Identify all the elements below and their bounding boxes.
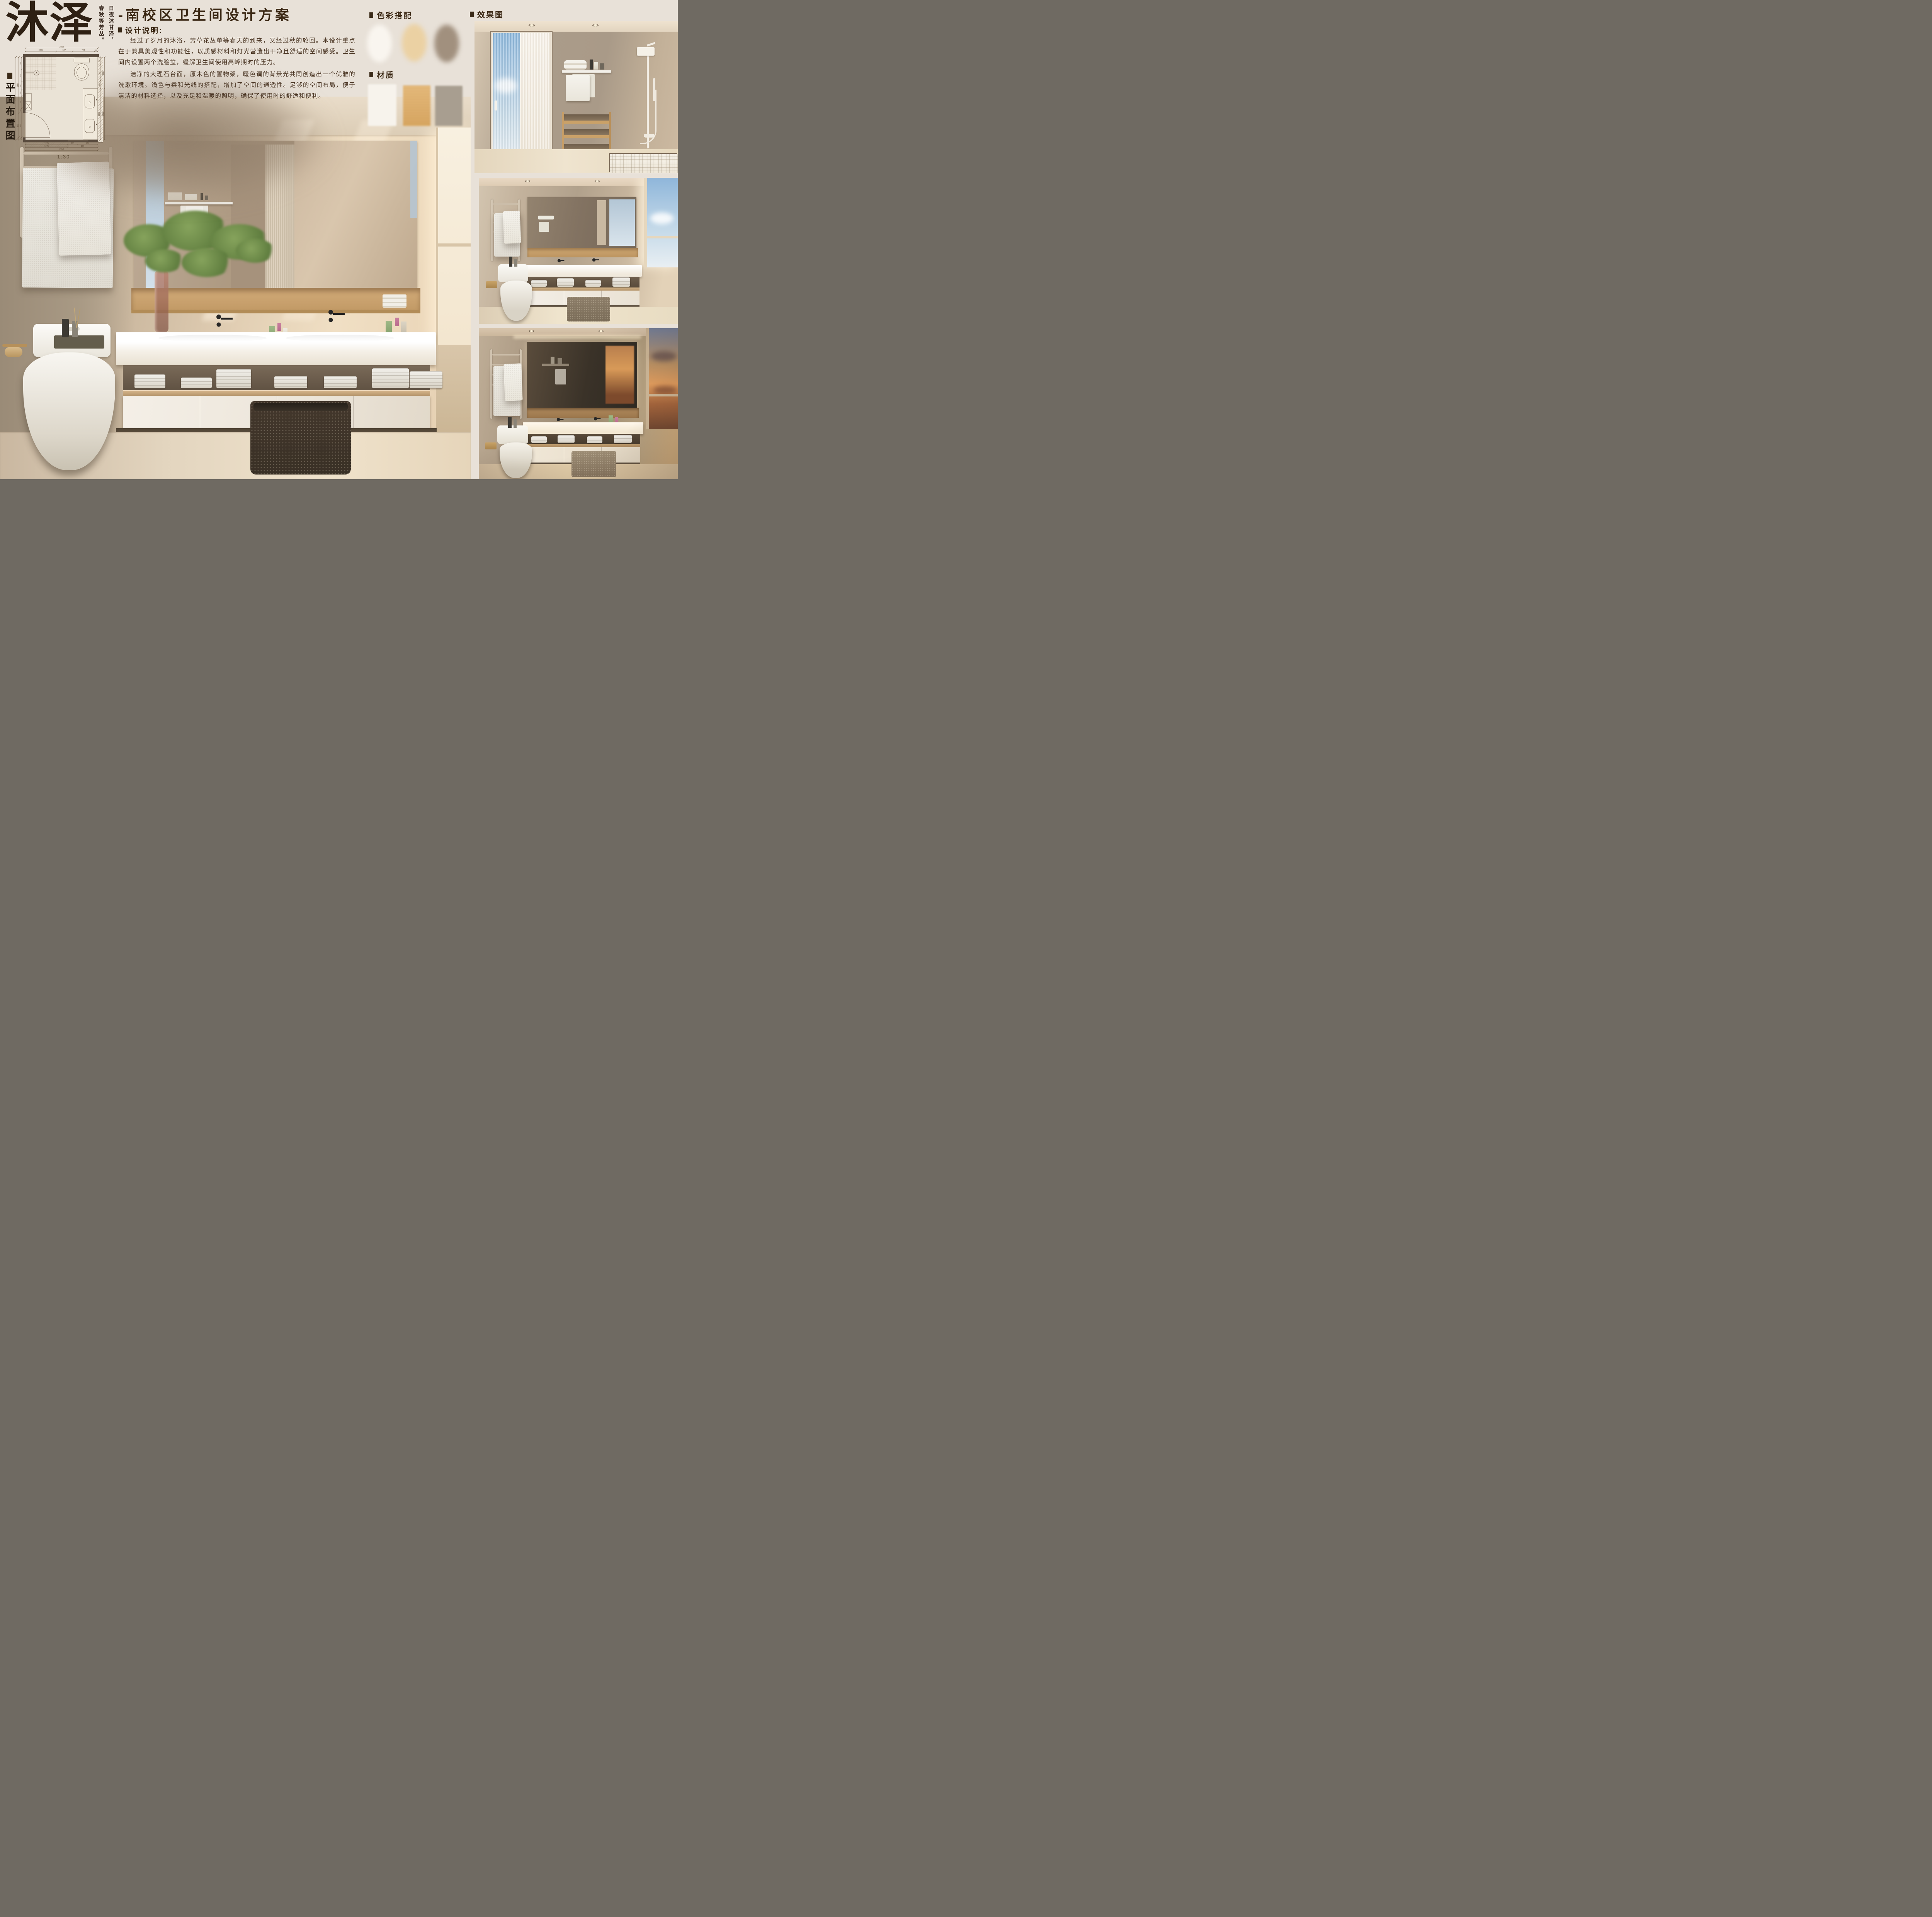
r1-shelf-bottles	[589, 58, 607, 70]
dim-right-outer-0: 1020	[102, 71, 105, 75]
towel-stack	[324, 376, 357, 388]
plan-vanity	[83, 88, 98, 140]
design-notes-label: 设计说明:	[125, 25, 163, 35]
r1-shelf-shade	[564, 129, 609, 135]
r2-towel-stack	[531, 280, 547, 287]
dim-left-inner-2: 260	[20, 85, 22, 87]
plan-scale: 1:30	[57, 154, 70, 160]
dim-left-inner-3: 200	[20, 92, 22, 94]
design-poster: 沐泽 日夜沐甘泽， 春秋等芳丛。 平面布置图	[0, 0, 678, 479]
toiletries-right	[383, 311, 409, 335]
r1-shelf-board2	[564, 121, 609, 124]
r1-shower-tray	[610, 154, 678, 173]
renders-bullet-icon	[470, 12, 474, 17]
dim-left-inner-5: 150	[20, 109, 22, 112]
wood-niche-lip	[131, 310, 420, 313]
r2-spotlight	[525, 180, 530, 182]
r2-mirror-sky	[609, 199, 635, 246]
plant-vase	[155, 270, 168, 332]
material-swatch-marble	[368, 84, 396, 126]
page-title: -南校区卫生间设计方案	[118, 4, 292, 24]
r2-tp-holder	[486, 281, 497, 288]
towel-stack	[216, 369, 251, 388]
wall-faucet-right	[328, 308, 346, 325]
color-swatch-tan	[402, 24, 427, 61]
towel-stack	[372, 368, 409, 388]
plant-leaf	[145, 249, 184, 272]
dim-left-mid-0: 1810	[17, 83, 19, 87]
renders-heading: 效果图	[470, 9, 504, 20]
dim-right-inner-2: 255	[99, 83, 100, 86]
r2-faucet	[557, 258, 565, 265]
dim-left-inner-0: 400	[20, 62, 22, 65]
dim-right-inner-1: 511	[99, 71, 100, 74]
dim-bottom1-0: 1370	[44, 142, 49, 145]
cabinet-seam	[200, 396, 200, 428]
dim-top-1: 527	[63, 49, 66, 51]
r1-spotlight	[592, 24, 599, 27]
r2-towel	[503, 211, 521, 243]
design-notes-heading: 设计说明:	[118, 25, 163, 35]
color-swatch-taupe	[434, 25, 459, 62]
dim-right-outer-1: 1670	[102, 112, 105, 116]
r1-hanging-towel	[566, 75, 590, 101]
laundry-basket	[250, 401, 351, 475]
materials-heading: 材质	[369, 69, 395, 80]
shelf-board	[123, 390, 430, 396]
dim-left-mid-1: 800	[17, 124, 19, 128]
window	[436, 128, 471, 345]
materials-label: 材质	[377, 69, 395, 80]
dim-right-inner-0: 255	[99, 60, 100, 62]
r2-niche	[527, 248, 638, 257]
r2-shelf-board	[527, 287, 639, 291]
r2-counter	[524, 265, 642, 277]
cabinet-seam	[353, 396, 354, 428]
r2-cloud	[650, 213, 673, 224]
dim-left-inner-7: 80	[20, 138, 22, 139]
r3-vignette	[479, 328, 678, 479]
niche-towels	[383, 294, 406, 308]
vanity-counter	[116, 332, 436, 365]
mirror-sky-sliver-right	[410, 141, 417, 218]
dim-top-3: 100	[95, 49, 97, 51]
floor-plan-svg: 2350 1000 527 723 100 2690 1810 800 80 4…	[14, 46, 111, 153]
r1-shelf-board	[562, 70, 611, 73]
r2-toilet-items	[507, 255, 522, 267]
design-notes-bullet-icon	[118, 27, 122, 32]
plan-cabinet	[26, 93, 31, 110]
dim-bottom-overall: 2350	[60, 148, 64, 150]
wall-faucet-left	[216, 313, 234, 329]
r2-shelf-row	[527, 277, 639, 288]
r1-shelf-board2	[564, 135, 609, 138]
open-shelf	[123, 365, 430, 391]
r1-shelf-shade	[564, 114, 609, 121]
r2-rack-rail	[491, 199, 493, 261]
r2-mirror-refl-strip	[597, 200, 606, 245]
r2-basket	[567, 297, 610, 321]
towel-stack	[410, 371, 442, 388]
r2-rack-rung	[493, 203, 518, 205]
materials-bullet-icon	[369, 72, 373, 77]
r1-wall-shelf	[562, 55, 611, 73]
material-swatch-wood	[403, 85, 430, 126]
tp-bracket	[2, 344, 27, 347]
towel-stack	[181, 378, 212, 388]
window-mullion	[438, 243, 471, 247]
towel-stack	[134, 374, 165, 388]
floor-plan: 2350 1000 527 723 100 2690 1810 800 80 4…	[14, 46, 111, 153]
material-swatch-stone	[435, 86, 463, 126]
r2-towel-stack	[585, 280, 601, 287]
design-paragraph-1: 经过了岁月的沐浴，芳草花丛单等春天的到来，又经过秋的轮回。本设计重点在于兼具美观…	[118, 36, 355, 68]
diffuser-bottle	[62, 319, 69, 337]
r2-window	[644, 178, 678, 267]
r2-towel-stack	[612, 277, 630, 287]
r2-window-bar	[647, 236, 678, 238]
towel-stack	[274, 376, 307, 388]
r1-spotlight	[529, 24, 535, 27]
design-notes-body: 经过了岁月的沐浴，芳草花丛单等春天的到来，又经过秋的轮回。本设计重点在于兼具美观…	[118, 36, 355, 102]
basin-recess-left	[158, 335, 267, 342]
dim-left-inner-4: 400	[20, 101, 22, 103]
plant-leaf	[236, 239, 274, 263]
dim-left-outer: 2690	[14, 96, 16, 100]
window-sill-wall	[436, 345, 471, 432]
palette-bullet-icon	[369, 12, 373, 18]
plant-leaf	[182, 248, 232, 277]
plan-toilet	[74, 58, 89, 80]
design-paragraph-2: 洁净的大理石台面，原木色的置物架，暖色调的背景光共同创造出一个优雅的洗漱环境。浅…	[118, 69, 355, 102]
r2-faucet	[592, 257, 600, 264]
r2-mirror-towels	[538, 216, 554, 219]
render-vanity-day	[479, 178, 678, 324]
wood-niche	[131, 288, 420, 310]
dim-bottom1-1: 330	[71, 142, 75, 145]
palette-label: 色彩搭配	[377, 9, 412, 20]
basin-recess-right	[286, 335, 394, 342]
r2-mirror	[527, 197, 636, 248]
r1-ceiling	[474, 21, 678, 32]
dim-top-overall: 2350	[60, 46, 64, 48]
r1-rolled-towels	[564, 60, 587, 70]
render-shower-room	[474, 21, 678, 173]
toilet-paper-holder	[2, 344, 27, 359]
dim-bottom1-2: 650	[86, 142, 90, 145]
dim-top-2: 723	[82, 49, 85, 51]
r2-cabinet-seam	[564, 291, 564, 305]
renders-label: 效果图	[477, 9, 504, 20]
palette-heading: 色彩搭配	[369, 9, 412, 20]
dim-left-mid-2: 80	[17, 138, 19, 139]
color-swatch-cream	[367, 25, 392, 62]
r1-shower-head	[637, 47, 655, 56]
r2-towel-stack	[557, 278, 574, 287]
r1-shower-valve	[644, 134, 655, 138]
dim-bottom2-1: 980	[81, 145, 85, 148]
toilet-tray	[54, 335, 104, 349]
dim-bottom2-0: 1370	[44, 145, 49, 148]
r2-spotlight	[595, 180, 600, 182]
r1-door-handle	[495, 100, 497, 111]
plan-bullet-icon	[7, 73, 12, 79]
render-vanity-sunset	[479, 328, 678, 479]
basket-opening	[253, 403, 348, 411]
dim-top-0: 1000	[39, 49, 43, 51]
tp-roll	[5, 347, 22, 357]
plan-shower-grid	[26, 57, 56, 90]
dim-right-inner-3: 1670	[98, 112, 100, 116]
r2-mirror-towels	[539, 222, 549, 232]
r2-toilet-tank	[498, 264, 528, 282]
logo: 沐泽	[5, 2, 94, 43]
dim-left-inner-1: 400	[20, 74, 22, 77]
dim-left-inner-6: 800	[20, 124, 22, 127]
